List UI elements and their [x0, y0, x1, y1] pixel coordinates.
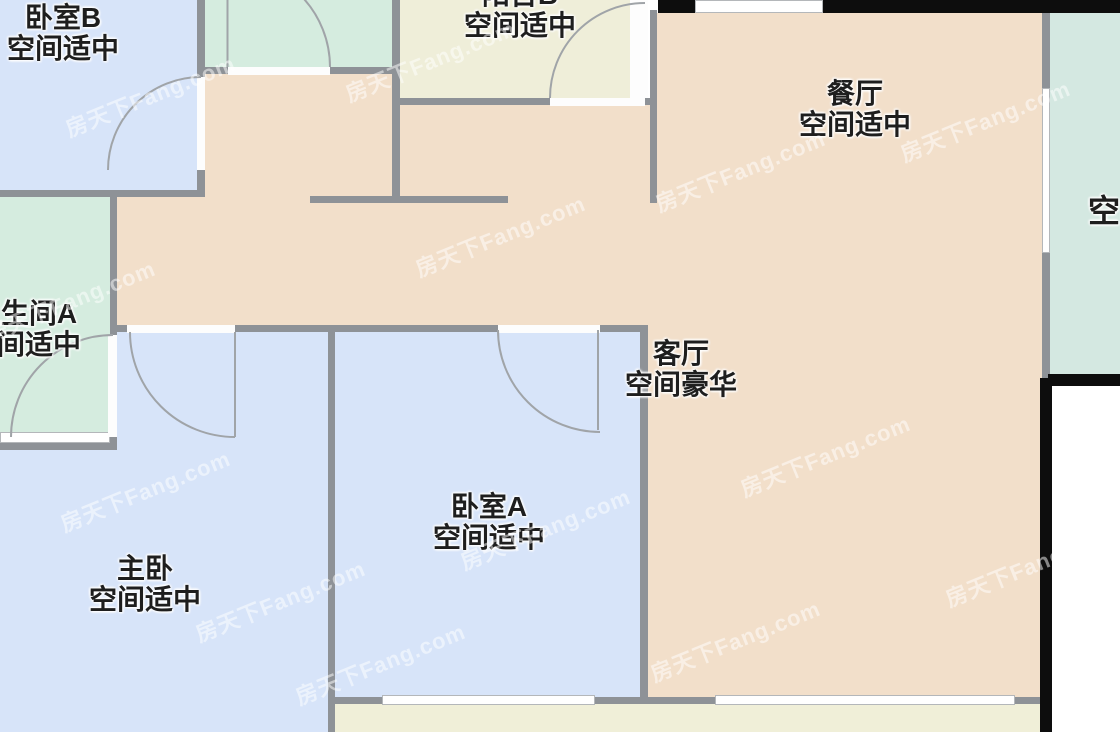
wall — [197, 170, 205, 197]
label-living: 客厅 空间豪华 — [625, 338, 737, 400]
room-note: 空间豪华 — [625, 369, 737, 400]
room-name: 餐厅 — [799, 78, 911, 109]
wall — [235, 325, 498, 332]
exterior-wall — [1048, 374, 1120, 386]
wall — [595, 697, 648, 704]
room-master — [117, 332, 328, 732]
hallway — [399, 105, 650, 197]
door-opening — [550, 98, 645, 106]
wall — [0, 190, 205, 197]
room-balcony-a — [335, 704, 1040, 732]
room-name: 卧室B — [7, 2, 119, 33]
label-bedroom-b: 卧室B 空间适中 — [7, 2, 119, 64]
door-opening — [127, 325, 235, 333]
window — [715, 695, 1015, 705]
wall — [1042, 253, 1050, 378]
label-master: 主卧 空间适中 — [89, 553, 201, 615]
room-name: 客厅 — [625, 338, 737, 369]
window — [695, 0, 823, 13]
wall — [648, 697, 715, 704]
door-leaf — [630, 0, 648, 98]
floor-plan: 卧室B 空间适中 阳台B 空间适中 餐厅 空间适中 客厅 空间豪华 卫生间A 空… — [0, 0, 1120, 732]
hallway — [650, 197, 657, 325]
label-right-room: 空间适中 — [1088, 196, 1120, 227]
window — [382, 695, 595, 705]
room-note: 空间适中 — [89, 584, 201, 615]
wall — [600, 325, 648, 332]
room-name: 主卧 — [89, 553, 201, 584]
room-closet-top — [205, 0, 392, 67]
exterior-wall — [823, 0, 1120, 13]
wall — [0, 443, 117, 450]
room-note: 空间适中 — [7, 33, 119, 64]
room-note: 空间适中 — [1088, 196, 1120, 227]
wall-partition — [310, 196, 508, 203]
wall — [650, 10, 657, 203]
door-opening — [228, 67, 330, 75]
exterior-wall — [658, 0, 695, 13]
wall — [1015, 697, 1042, 704]
room-name: 阳台B — [464, 0, 576, 10]
door-opening — [108, 335, 117, 437]
wall — [398, 98, 550, 105]
wall — [335, 697, 382, 704]
door-opening — [498, 325, 600, 333]
window — [0, 432, 110, 443]
